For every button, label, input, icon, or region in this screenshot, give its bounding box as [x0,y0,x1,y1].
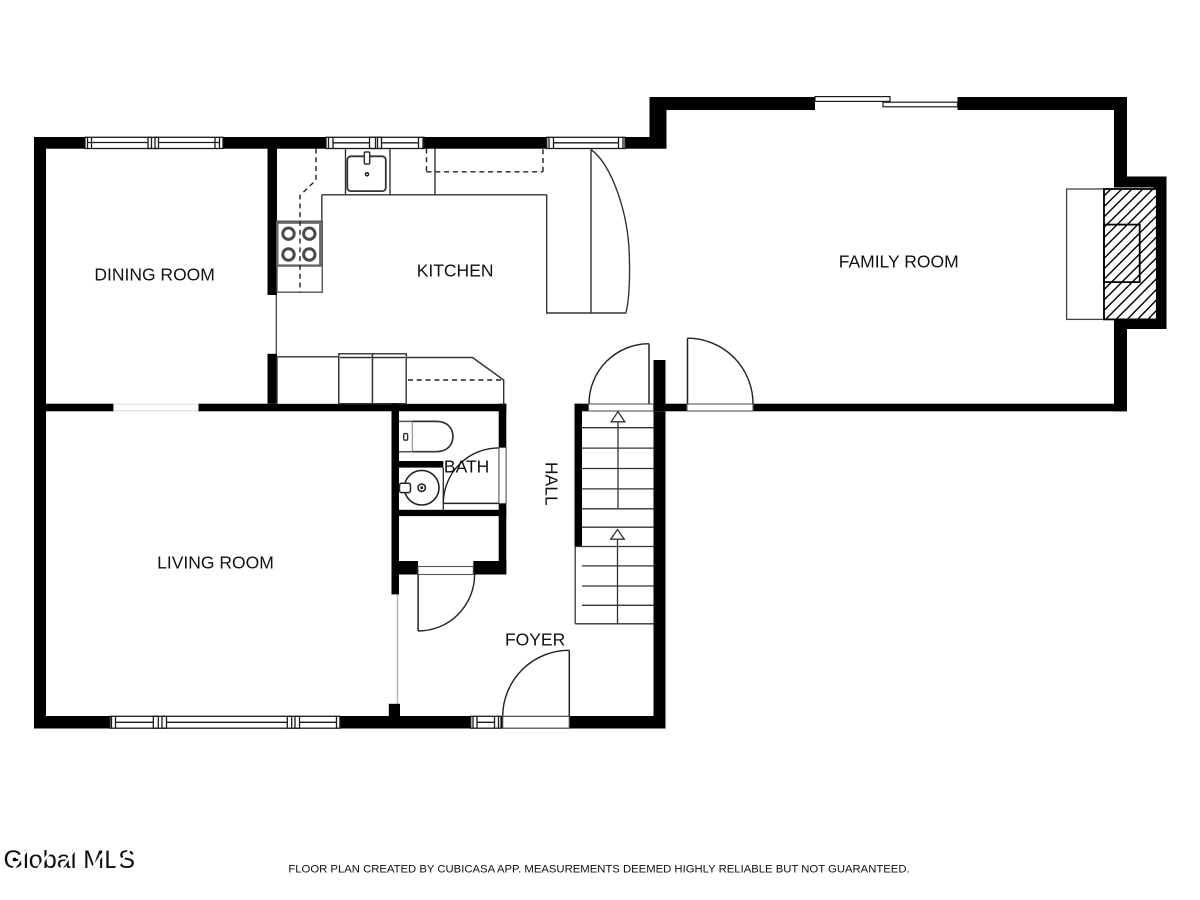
svg-text:DINING ROOM: DINING ROOM [94,265,215,285]
svg-text:KITCHEN: KITCHEN [417,261,494,281]
svg-text:FOYER: FOYER [505,630,565,650]
svg-text:FLOOR PLAN CREATED BY CUBICASA: FLOOR PLAN CREATED BY CUBICASA APP. MEAS… [288,864,909,876]
svg-text:BATH: BATH [444,457,489,477]
svg-text:HALL: HALL [542,462,562,506]
svg-text:LIVING ROOM: LIVING ROOM [157,553,274,573]
svg-text:FAMILY ROOM: FAMILY ROOM [839,252,959,272]
